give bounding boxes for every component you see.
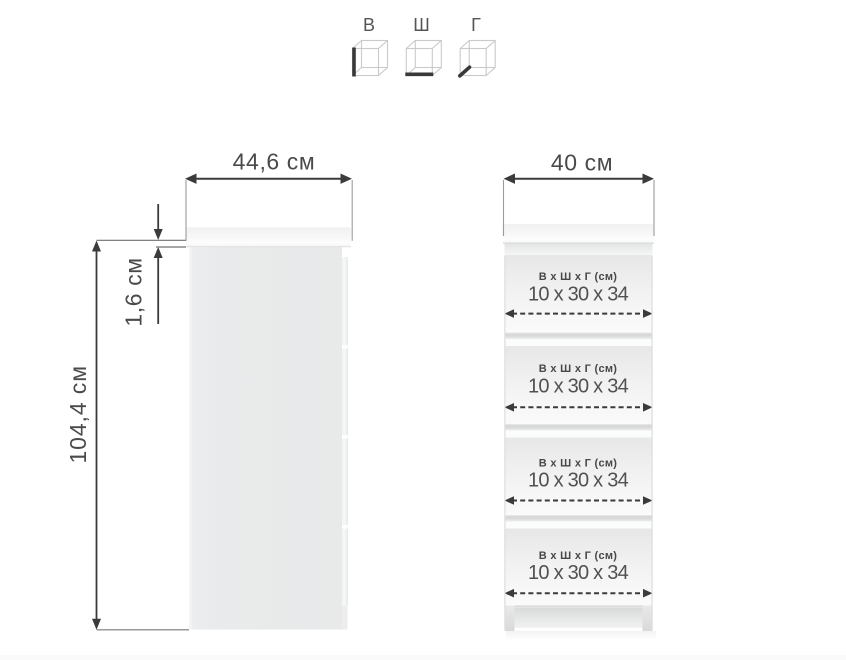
svg-text:10 х 30 х 34: 10 х 30 х 34 <box>528 376 629 398</box>
svg-text:10 х 30 х 34: 10 х 30 х 34 <box>528 470 629 492</box>
svg-text:44,6 см: 44,6 см <box>233 149 316 175</box>
svg-text:В х Ш х Г (см): В х Ш х Г (см) <box>539 458 618 470</box>
svg-text:10 х 30 х 34: 10 х 30 х 34 <box>528 562 629 584</box>
svg-text:1,6 см: 1,6 см <box>121 257 147 326</box>
svg-text:В х Ш х Г (см): В х Ш х Г (см) <box>539 550 618 562</box>
svg-text:40 см: 40 см <box>551 150 613 176</box>
svg-text:В х Ш х Г (см): В х Ш х Г (см) <box>539 363 618 375</box>
svg-text:Ш: Ш <box>413 15 430 35</box>
svg-text:10 х 30 х 34: 10 х 30 х 34 <box>528 284 629 306</box>
svg-text:В: В <box>363 15 375 35</box>
svg-text:Г: Г <box>471 15 481 35</box>
svg-text:104,4 см: 104,4 см <box>65 365 91 463</box>
svg-text:В х Ш х Г (см): В х Ш х Г (см) <box>539 271 618 283</box>
